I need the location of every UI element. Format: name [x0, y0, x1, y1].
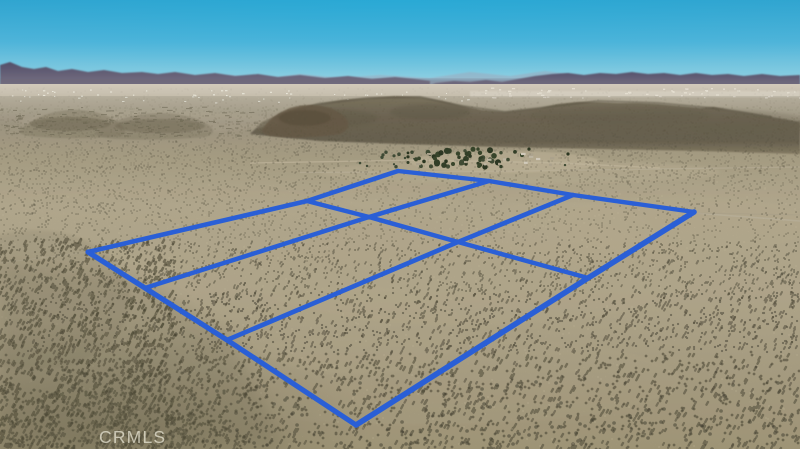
- svg-text:CRMLS: CRMLS: [99, 427, 166, 447]
